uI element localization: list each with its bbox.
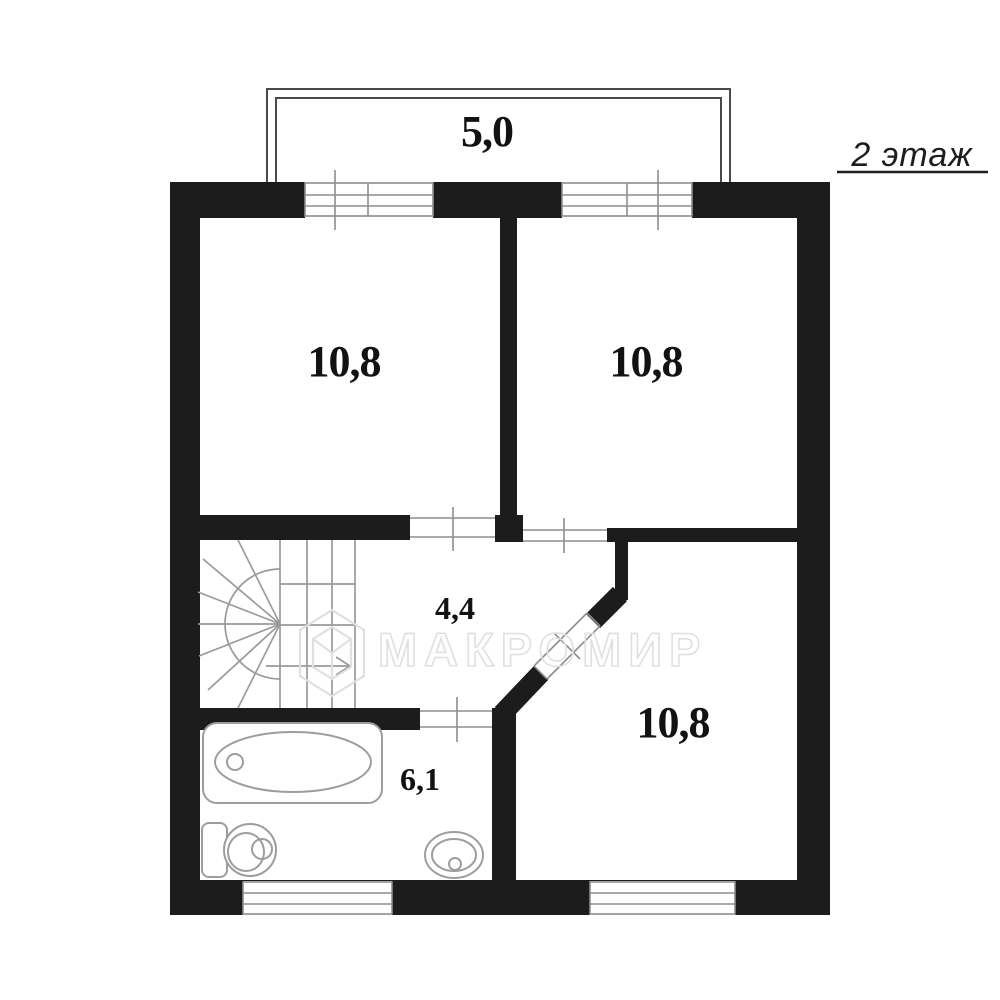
wall-between-top-rooms [500, 218, 517, 518]
floor-plan-canvas: 5,0 2 этаж [0, 0, 1000, 1000]
door-bathroom [420, 697, 492, 742]
window-glass [243, 881, 392, 915]
window-top-right [562, 170, 692, 230]
door-top-left-room [410, 507, 495, 551]
window-bottom-right [590, 881, 735, 915]
window-bottom-left [243, 881, 392, 915]
watermark-text: МАКРОМИР [378, 623, 707, 676]
wall-bottomright-room-top [607, 528, 798, 542]
bathtub-icon [203, 723, 382, 803]
floor-title: 2 этаж [837, 136, 988, 174]
balcony: 5,0 [267, 89, 730, 182]
toilet-bowl [224, 824, 276, 876]
hall-area-label: 4,4 [435, 590, 475, 626]
wall-top [170, 182, 830, 218]
watermark: МАКРОМИР [300, 610, 707, 696]
window-top-left [305, 170, 433, 230]
wall-left [170, 182, 200, 915]
balcony-area-label: 5,0 [461, 107, 513, 156]
room-bottom-right-area-label: 10,8 [637, 698, 710, 747]
window-glass [590, 881, 735, 915]
staircase [198, 540, 355, 708]
wall-right [797, 182, 830, 915]
wall-bathroom-right [492, 708, 516, 888]
floor-plan-page: 5,0 2 этаж [0, 0, 1000, 1000]
room-top-left-area-label: 10,8 [308, 337, 381, 386]
wall-hall-top-mid [495, 515, 523, 542]
floor-title-label: 2 этаж [850, 136, 973, 174]
stair-winder-line [203, 559, 280, 624]
wall-hall-top-left [200, 515, 410, 540]
stair-direction-arrow-icon [266, 657, 350, 675]
stair-winder-line [199, 624, 280, 656]
stair-winder-line [198, 592, 280, 624]
door-top-right-room [523, 518, 607, 553]
toilet-icon [202, 823, 276, 877]
stair-winder-fan [198, 540, 280, 708]
sink-icon [425, 832, 483, 878]
bathroom-area-label: 6,1 [400, 761, 440, 797]
wall-diagonal-lower [502, 673, 541, 714]
stair-winder-line [208, 624, 280, 690]
window-glass [305, 182, 433, 218]
room-top-right-area-label: 10,8 [610, 337, 683, 386]
bathroom-fixtures [202, 723, 483, 878]
wall-diagonal-upper [593, 594, 620, 621]
